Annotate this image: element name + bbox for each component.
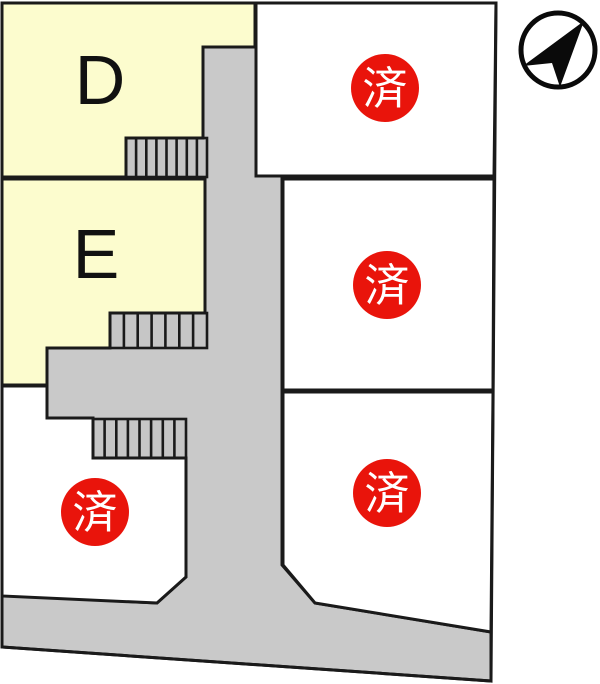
stairs-upper bbox=[126, 138, 207, 177]
stairs-middle bbox=[110, 313, 207, 348]
sold-badge-text: 済 bbox=[362, 63, 407, 114]
north-arrow-icon bbox=[521, 13, 595, 87]
lot-map: D E 済 済 済 済 bbox=[0, 0, 600, 684]
stairs-lower bbox=[93, 419, 186, 458]
stairs-lower-steps bbox=[105, 419, 175, 458]
sold-badge-bottom-left: 済 bbox=[61, 478, 129, 546]
stairs-upper-steps bbox=[136, 138, 197, 177]
lot-d-label: D bbox=[75, 41, 126, 119]
sold-badge-text: 済 bbox=[364, 468, 409, 519]
sold-badge-text: 済 bbox=[72, 487, 117, 538]
lot-map-canvas: D E 済 済 済 済 bbox=[0, 0, 600, 684]
sold-badge-bottom-right: 済 bbox=[353, 459, 421, 527]
sold-badge-text: 済 bbox=[364, 260, 409, 311]
sold-badge-middle-right: 済 bbox=[353, 251, 421, 319]
sold-badge-top-right: 済 bbox=[351, 54, 419, 122]
lot-e-label: E bbox=[73, 215, 120, 293]
